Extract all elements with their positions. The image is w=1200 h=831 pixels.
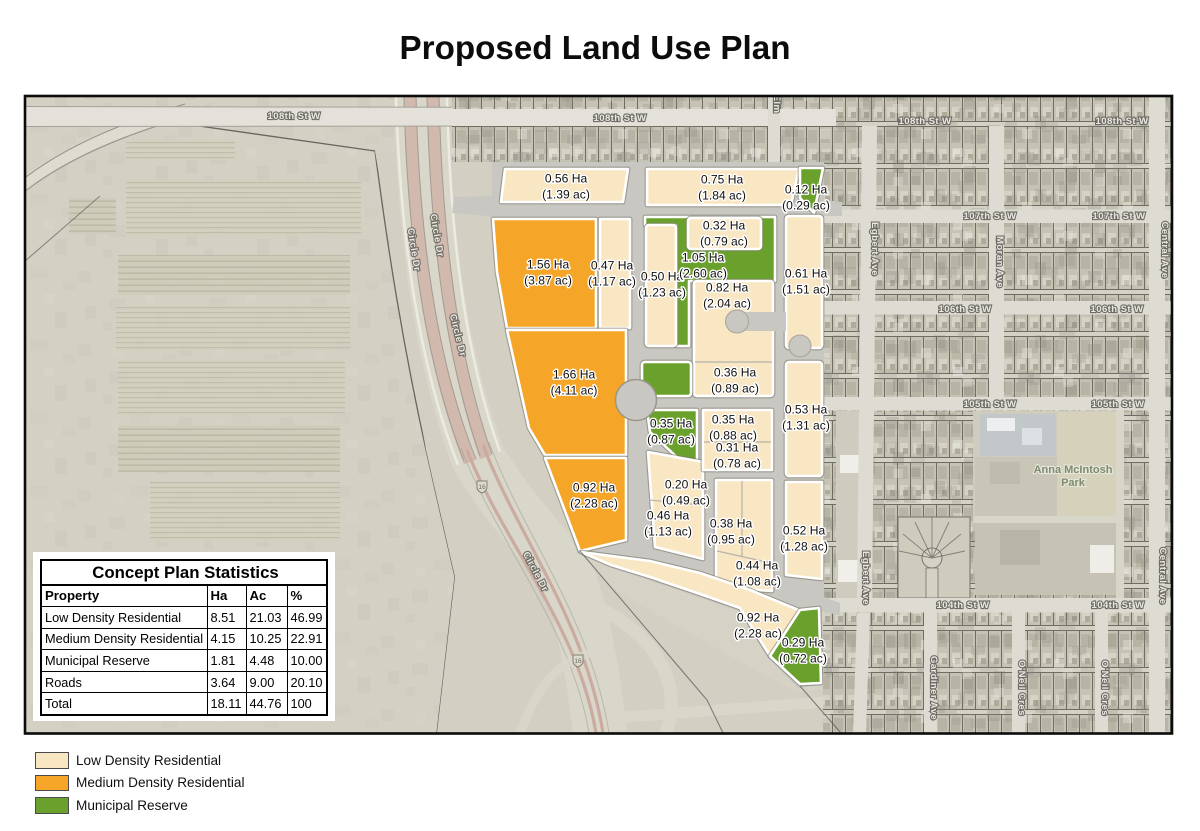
svg-text:0.20 Ha: 0.20 Ha bbox=[665, 478, 708, 492]
svg-text:(1.39 ac): (1.39 ac) bbox=[542, 188, 590, 202]
svg-text:0.61 Ha: 0.61 Ha bbox=[785, 267, 828, 281]
svg-text:(2.60 ac): (2.60 ac) bbox=[679, 267, 727, 281]
svg-text:Egbert Ave: Egbert Ave bbox=[869, 222, 880, 276]
svg-text:(4.11 ac): (4.11 ac) bbox=[551, 384, 598, 398]
svg-text:O'Neil Cres: O'Neil Cres bbox=[1099, 660, 1110, 716]
svg-text:(0.79 ac): (0.79 ac) bbox=[700, 235, 748, 249]
svg-text:0.92 Ha: 0.92 Ha bbox=[737, 611, 780, 625]
svg-text:0.92 Ha: 0.92 Ha bbox=[573, 481, 616, 495]
svg-text:108th St W: 108th St W bbox=[898, 116, 952, 127]
svg-text:0.56 Ha: 0.56 Ha bbox=[545, 172, 588, 186]
svg-text:O'Neil Cres: O'Neil Cres bbox=[1016, 660, 1027, 716]
svg-text:0.44 Ha: 0.44 Ha bbox=[736, 559, 779, 573]
svg-text:(1.23 ac): (1.23 ac) bbox=[638, 286, 686, 300]
svg-text:0.50 Ha: 0.50 Ha bbox=[641, 270, 684, 284]
svg-text:(0.87 ac): (0.87 ac) bbox=[647, 433, 695, 447]
svg-text:(1.28 ac): (1.28 ac) bbox=[780, 540, 828, 554]
svg-text:16: 16 bbox=[478, 484, 486, 491]
svg-text:106th St W: 106th St W bbox=[1090, 304, 1144, 315]
svg-text:Egbert Ave: Egbert Ave bbox=[860, 551, 871, 605]
svg-text:0.46 Ha: 0.46 Ha bbox=[647, 509, 690, 523]
svg-text:(3.87 ac): (3.87 ac) bbox=[524, 274, 572, 288]
svg-text:Anna McIntosh: Anna McIntosh bbox=[1034, 464, 1113, 476]
svg-text:0.35 Ha: 0.35 Ha bbox=[712, 413, 755, 427]
svg-text:107th St W: 107th St W bbox=[963, 211, 1017, 222]
svg-text:Ave: Ave bbox=[857, 771, 868, 789]
svg-text:0.32 Ha: 0.32 Ha bbox=[703, 219, 746, 233]
svg-text:(0.49 ac): (0.49 ac) bbox=[662, 494, 710, 508]
svg-text:1.05 Ha: 1.05 Ha bbox=[682, 251, 725, 265]
svg-text:Gardiner Ave: Gardiner Ave bbox=[928, 656, 939, 720]
svg-text:(1.13 ac): (1.13 ac) bbox=[644, 525, 692, 539]
svg-text:Central Ave: Central Ave bbox=[1157, 547, 1168, 604]
svg-text:(2.28 ac): (2.28 ac) bbox=[570, 497, 618, 511]
svg-text:108th St W: 108th St W bbox=[267, 111, 321, 122]
svg-text:(0.89 ac): (0.89 ac) bbox=[711, 382, 759, 396]
svg-text:108th St W: 108th St W bbox=[1095, 116, 1149, 127]
svg-text:106th St W: 106th St W bbox=[938, 304, 992, 315]
svg-text:16: 16 bbox=[574, 658, 582, 665]
svg-text:0.47 Ha: 0.47 Ha bbox=[591, 259, 634, 273]
svg-text:Moran Ave: Moran Ave bbox=[994, 236, 1005, 288]
svg-text:0.52 Ha: 0.52 Ha bbox=[783, 524, 826, 538]
svg-text:(2.04 ac): (2.04 ac) bbox=[703, 297, 751, 311]
svg-text:(0.29 ac): (0.29 ac) bbox=[782, 199, 830, 213]
svg-text:(1.51 ac): (1.51 ac) bbox=[782, 283, 830, 297]
svg-text:104th St W: 104th St W bbox=[1091, 600, 1145, 611]
svg-text:Elm: Elm bbox=[771, 95, 782, 114]
svg-text:0.35 Ha: 0.35 Ha bbox=[650, 417, 693, 431]
svg-text:0.12 Ha: 0.12 Ha bbox=[785, 183, 828, 197]
svg-text:(1.84 ac): (1.84 ac) bbox=[698, 189, 746, 203]
svg-text:(0.72 ac): (0.72 ac) bbox=[779, 652, 827, 666]
svg-text:0.38 Ha: 0.38 Ha bbox=[710, 517, 753, 531]
svg-text:108th St W: 108th St W bbox=[593, 113, 647, 124]
svg-text:104th St W: 104th St W bbox=[936, 600, 990, 611]
svg-text:1.66 Ha: 1.66 Ha bbox=[553, 368, 596, 382]
svg-text:(1.08 ac): (1.08 ac) bbox=[733, 575, 781, 589]
svg-text:0.75 Ha: 0.75 Ha bbox=[701, 173, 744, 187]
svg-text:Central Ave: Central Ave bbox=[1159, 221, 1170, 278]
svg-text:(1.31 ac): (1.31 ac) bbox=[782, 419, 830, 433]
svg-text:1.56 Ha: 1.56 Ha bbox=[527, 258, 570, 272]
svg-text:(0.78 ac): (0.78 ac) bbox=[713, 457, 761, 471]
svg-text:(1.17 ac): (1.17 ac) bbox=[588, 275, 636, 289]
svg-text:0.53 Ha: 0.53 Ha bbox=[785, 403, 828, 417]
svg-text:(0.95 ac): (0.95 ac) bbox=[707, 533, 755, 547]
svg-text:Park: Park bbox=[1061, 477, 1086, 489]
svg-text:0.31 Ha: 0.31 Ha bbox=[716, 441, 759, 455]
svg-text:105th St W: 105th St W bbox=[1091, 399, 1145, 410]
svg-text:0.29 Ha: 0.29 Ha bbox=[782, 636, 825, 650]
svg-text:107th St W: 107th St W bbox=[1092, 211, 1146, 222]
svg-text:0.82 Ha: 0.82 Ha bbox=[706, 281, 749, 295]
svg-text:0.36 Ha: 0.36 Ha bbox=[714, 366, 757, 380]
svg-text:(2.28 ac): (2.28 ac) bbox=[734, 627, 782, 641]
svg-text:105th St W: 105th St W bbox=[963, 399, 1017, 410]
